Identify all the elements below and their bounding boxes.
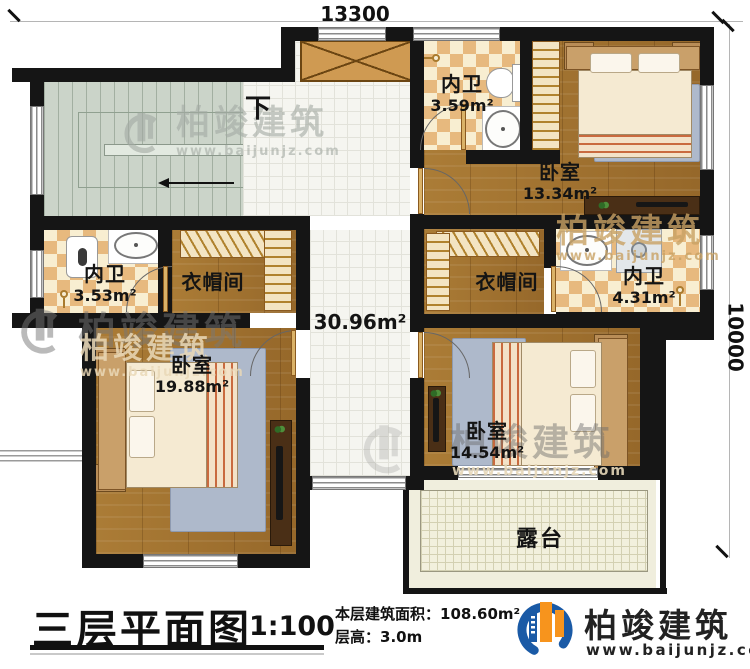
bed-blanket-stripes <box>578 134 692 158</box>
room-label-bedroom-top-right: 卧室 13.34m² <box>500 160 620 203</box>
wall <box>12 68 288 82</box>
window <box>30 250 44 298</box>
stairs-down-label: 下 <box>240 94 276 125</box>
terrace-railing <box>403 490 409 594</box>
room-label-closet-left: 衣帽间 <box>156 270 270 294</box>
room-name: 卧室 <box>500 160 620 184</box>
room-label-hall: 30.96m² <box>298 310 422 334</box>
dimension-width-value: 13300 <box>320 2 390 26</box>
bed-pillow <box>129 416 155 458</box>
dimension-tick <box>715 545 728 558</box>
floor-height-label: 层高： <box>335 628 380 646</box>
brand-name-text: 柏竣建筑 <box>584 606 732 645</box>
room-area: 3.59m² <box>412 96 512 115</box>
wall <box>96 313 250 328</box>
room-name: 内卫 <box>588 264 700 288</box>
window <box>143 554 238 568</box>
wall <box>700 41 714 85</box>
wall <box>424 314 640 328</box>
terrace-railing <box>403 588 667 594</box>
bath-top-doorstop <box>432 54 440 62</box>
eave-lines <box>0 450 82 462</box>
bed-pillow <box>570 394 596 432</box>
room-name: 衣帽间 <box>156 270 270 294</box>
room-area: 19.88m² <box>130 377 254 396</box>
floor-area-info: 本层建筑面积：108.60m² <box>335 603 520 624</box>
bath-top-doorstop-stem <box>424 57 433 59</box>
room-label-closet-right: 衣帽间 <box>450 270 564 294</box>
wall <box>640 340 654 480</box>
door-leaf <box>418 332 423 378</box>
wall <box>640 326 714 340</box>
terrace-side-wall <box>654 340 666 480</box>
window <box>318 27 386 41</box>
closet-left-hanger-rack <box>180 230 276 258</box>
wall <box>520 41 532 150</box>
dimension-depth: 10000 <box>724 290 748 385</box>
room-label-bedroom-bottom-right: 卧室 14.54m² <box>428 419 546 462</box>
floor-height-info: 层高：3.0m <box>335 626 422 647</box>
dimension-width: 13300 <box>280 2 430 26</box>
room-name: 露台 <box>516 527 564 552</box>
wall <box>12 313 96 328</box>
brand-website: www.baijunjz.com <box>586 641 750 659</box>
floor-area-value: 108.60m² <box>440 605 520 623</box>
plant <box>430 389 441 398</box>
room-label-bath-right: 内卫 4.31m² <box>588 264 700 307</box>
door-leaf <box>418 168 423 214</box>
tv <box>636 202 688 207</box>
stairs-down-text: 下 <box>245 94 271 124</box>
bed-pillow <box>570 350 596 388</box>
window <box>700 85 714 170</box>
hall-area: 30.96m² <box>314 310 407 334</box>
window <box>413 27 500 41</box>
wall <box>82 328 96 568</box>
wall <box>30 82 44 106</box>
wall <box>386 27 413 41</box>
brand-website-text: www.baijunjz.com <box>586 641 750 659</box>
bath-top-faucet <box>501 127 505 131</box>
stair-handrail <box>104 144 244 156</box>
stair-direction-line <box>168 182 234 184</box>
bed-headboard <box>98 352 126 490</box>
room-area: 3.53m² <box>50 286 160 305</box>
terrace-railing <box>660 480 666 594</box>
room-name: 内卫 <box>412 72 512 96</box>
wall <box>410 466 458 480</box>
floor-height-value: 3.0m <box>380 628 422 646</box>
plan-scale-text: 1:100 <box>249 611 335 642</box>
closet-right-hanger-rack <box>436 231 540 257</box>
room-label-bath-left: 内卫 3.53m² <box>50 262 160 305</box>
room-label-bath-top: 内卫 3.59m² <box>412 72 512 115</box>
shower-head <box>631 242 647 258</box>
room-name: 卧室 <box>428 419 546 443</box>
title-underline-thick <box>30 645 324 650</box>
floor-area-label: 本层建筑面积： <box>335 605 440 623</box>
bed-headboard <box>598 338 628 468</box>
room-name: 衣帽间 <box>450 270 564 294</box>
wall <box>296 476 312 490</box>
bed-pillow <box>590 53 632 73</box>
room-name: 卧室 <box>130 353 254 377</box>
sliding-door <box>458 468 598 478</box>
wall <box>500 27 714 41</box>
window <box>312 476 406 490</box>
floor-plan-canvas: 柏竣建筑 www.baijunjz.com 柏竣建筑 www.baijunjz.… <box>0 0 750 669</box>
closet-right-side-rack <box>426 233 450 311</box>
dimension-depth-value: 10000 <box>724 302 748 372</box>
room-area: 13.34m² <box>500 184 620 203</box>
wall <box>288 27 318 41</box>
room-area: 4.31m² <box>588 288 700 307</box>
plant <box>274 425 285 434</box>
bath-right-faucet <box>585 248 589 252</box>
wall <box>424 215 714 229</box>
wall <box>82 554 143 568</box>
brand-name: 柏竣建筑 <box>584 599 732 647</box>
plan-scale: 1:100 <box>249 611 335 642</box>
wall <box>598 466 640 480</box>
window <box>700 235 714 290</box>
hall-floor-main <box>310 230 410 476</box>
room-label-bedroom-bottom-left: 卧室 19.88m² <box>130 353 254 396</box>
bed-pillow <box>638 53 680 73</box>
title-underline-thin <box>30 653 324 655</box>
brand-logo-icon <box>512 597 578 665</box>
bath-left-faucet <box>134 243 138 247</box>
window <box>30 106 44 195</box>
hall-cabinet <box>300 40 412 82</box>
door-leaf <box>291 330 296 376</box>
room-label-terrace: 露台 <box>475 527 605 553</box>
bedroom-top-right-wardrobe <box>532 41 560 160</box>
tv <box>276 446 283 520</box>
wall <box>296 378 310 568</box>
room-area: 14.54m² <box>428 443 546 462</box>
wall <box>544 229 556 268</box>
room-name: 内卫 <box>50 262 160 286</box>
